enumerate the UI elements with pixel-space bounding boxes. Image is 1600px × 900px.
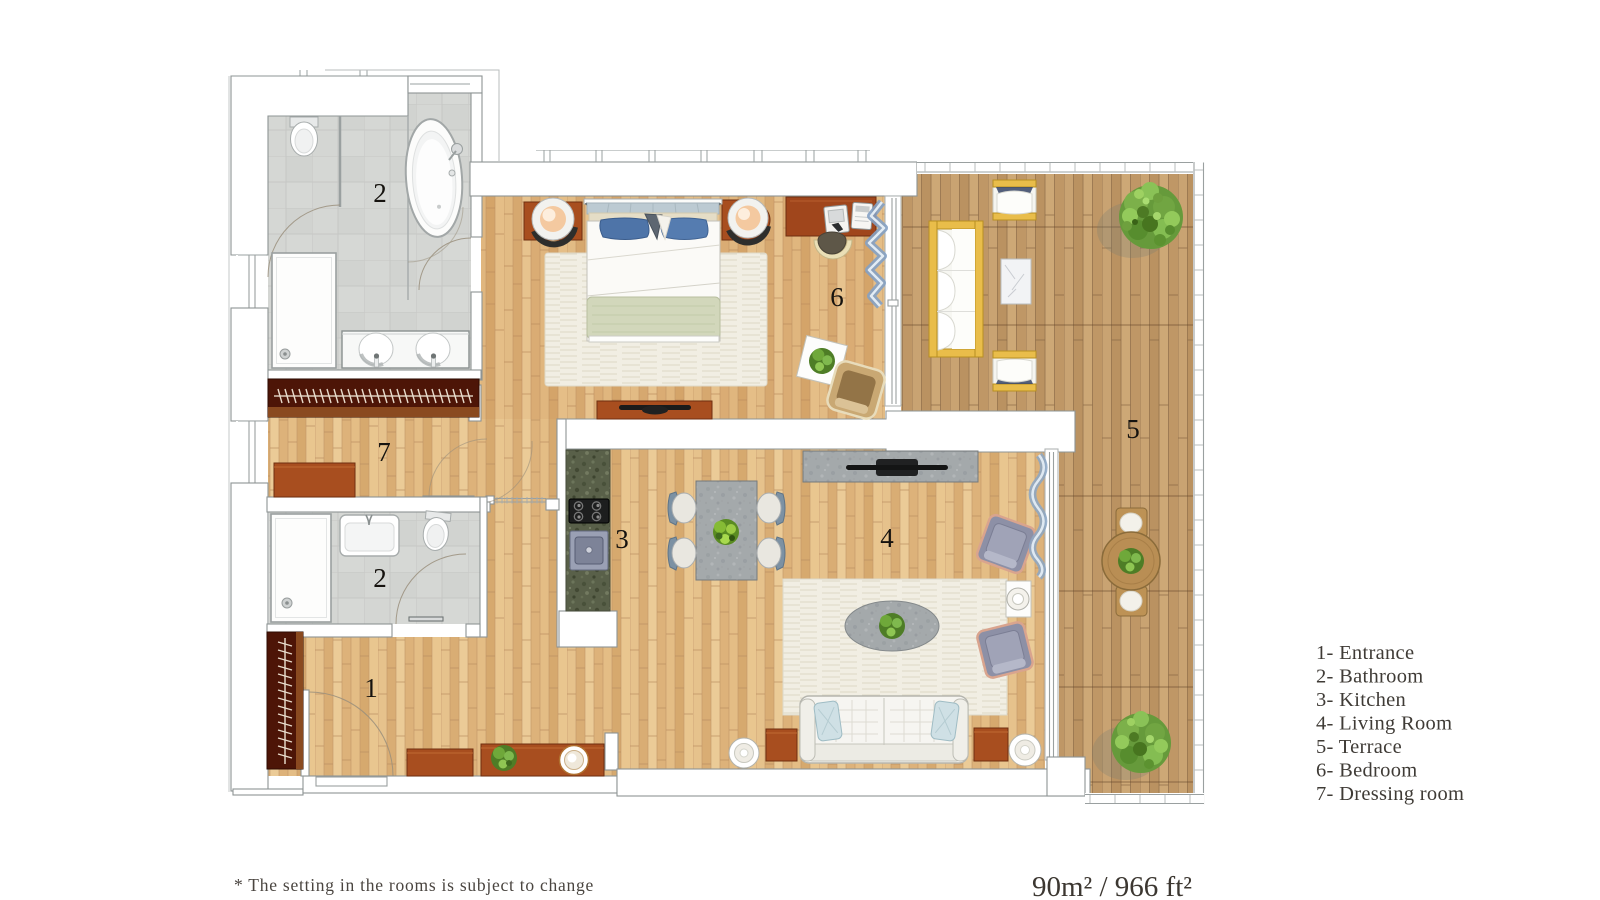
svg-text:3- Kitchen: 3- Kitchen xyxy=(1316,689,1406,711)
svg-text:90m² / 966 ft²: 90m² / 966 ft² xyxy=(1032,871,1192,900)
svg-text:2- Bathroom: 2- Bathroom xyxy=(1316,666,1424,688)
svg-text:7: 7 xyxy=(377,437,391,467)
svg-text:1- Entrance: 1- Entrance xyxy=(1316,642,1414,664)
svg-text:5: 5 xyxy=(1126,414,1140,444)
svg-text:4- Living Room: 4- Living Room xyxy=(1316,713,1452,735)
svg-text:6: 6 xyxy=(830,282,844,312)
svg-text:6- Bedroom: 6- Bedroom xyxy=(1316,760,1418,782)
svg-text:3: 3 xyxy=(615,524,629,554)
svg-text:1: 1 xyxy=(364,673,378,703)
svg-text:2: 2 xyxy=(373,178,387,208)
svg-text:5- Terrace: 5- Terrace xyxy=(1316,736,1402,758)
svg-text:* The setting in the rooms is: * The setting in the rooms is subject to… xyxy=(234,875,594,895)
svg-text:4: 4 xyxy=(880,523,894,553)
svg-text:7- Dressing room: 7- Dressing room xyxy=(1316,783,1464,805)
svg-text:2: 2 xyxy=(373,563,387,593)
